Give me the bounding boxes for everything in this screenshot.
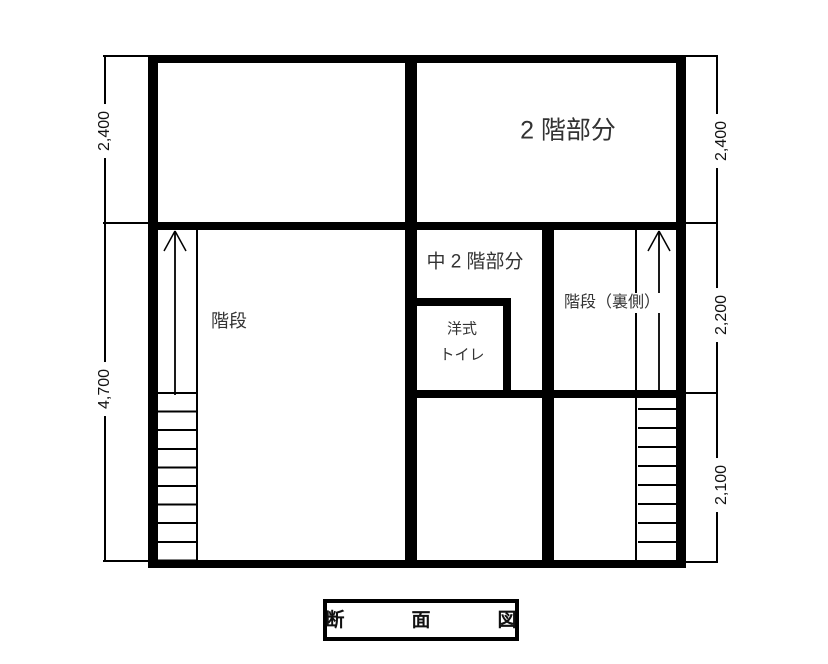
left-tick-mid xyxy=(103,222,148,224)
left-stairs-up-arrow-icon xyxy=(158,229,192,397)
toilet-right-wall xyxy=(503,298,511,398)
room-label-stairs: 階段 xyxy=(211,312,247,330)
second-floor-slab-wall xyxy=(148,222,686,230)
right-stair-edge-line xyxy=(635,230,637,560)
ground-floor-wall xyxy=(148,560,686,568)
room-label-stairs-back: 階段（裏側） xyxy=(560,293,664,313)
dimension-label-left-upper: 2,400 xyxy=(95,104,115,158)
dimension-label-right-upper: 2,400 xyxy=(712,114,732,168)
room-label-mezzanine: 中 2 階部分 xyxy=(426,253,523,272)
left-stairs-ladder xyxy=(158,392,196,560)
right-tick-bottom xyxy=(686,561,717,563)
right-tick-top xyxy=(686,55,717,57)
left-tick-bottom xyxy=(103,560,148,562)
left-exterior-wall xyxy=(148,55,158,568)
central-wall xyxy=(405,55,417,568)
right-tick-mid1 xyxy=(686,222,717,224)
title-box: 断 面 図 xyxy=(323,599,519,641)
dimension-label-right-lower: 2,100 xyxy=(712,458,732,512)
right-exterior-wall xyxy=(676,55,686,568)
room-label-second-floor: 2 階部分 xyxy=(520,119,616,144)
right-tick-mid2 xyxy=(686,392,717,394)
right-stairs-ladder xyxy=(638,408,676,560)
cross-section-drawing: 2,400 4,700 2,400 2,200 2,100 2 階部分 中 2 … xyxy=(0,0,828,664)
room-label-toilet-line1: 洋式 xyxy=(447,322,477,337)
left-tick-top xyxy=(103,55,148,57)
toilet-top-wall xyxy=(417,298,511,306)
mezzanine-floor-wall xyxy=(417,390,676,398)
room-label-toilet-line2: トイレ xyxy=(439,348,484,363)
left-stair-edge-line xyxy=(196,230,198,560)
dimension-label-right-middle: 2,200 xyxy=(712,288,732,342)
drawing-title: 断 面 図 xyxy=(302,611,541,630)
top-wall xyxy=(148,55,686,63)
dimension-label-left-lower: 4,700 xyxy=(95,362,115,416)
